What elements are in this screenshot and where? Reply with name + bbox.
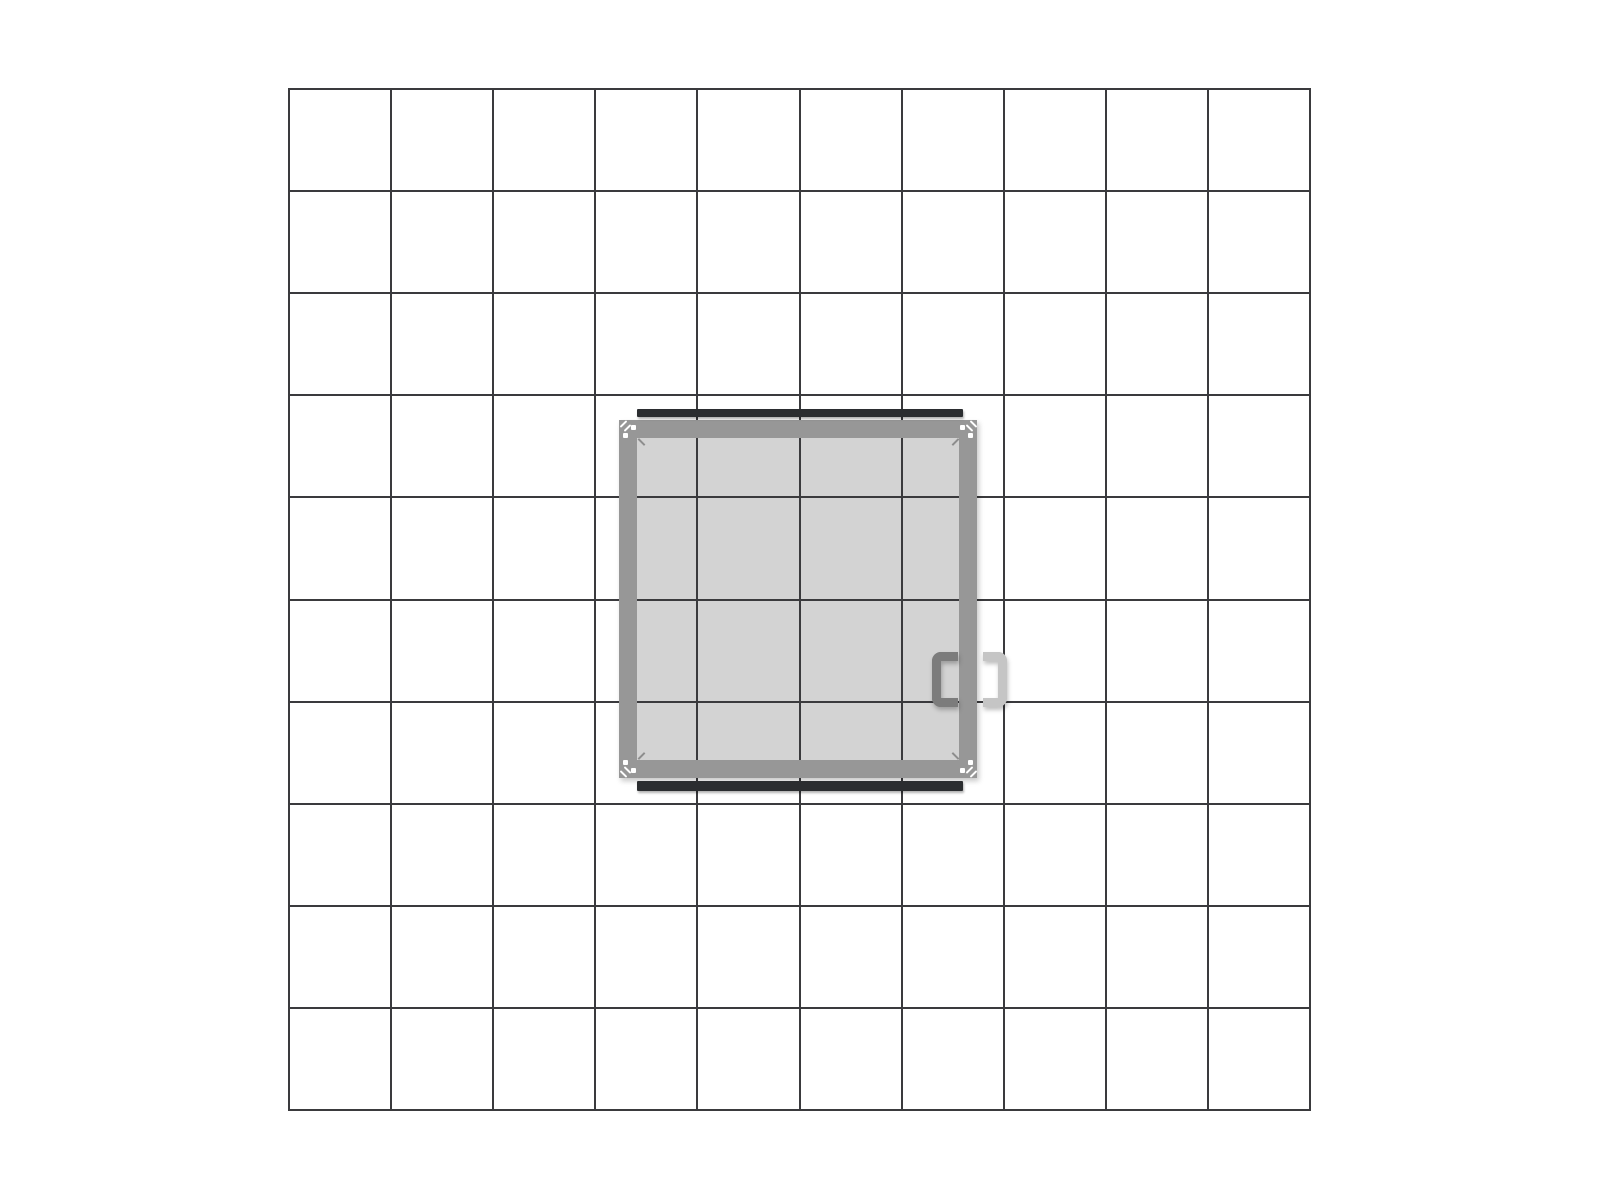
grid-hline xyxy=(288,905,1311,907)
grid-hline xyxy=(288,394,1311,396)
frame-bolt xyxy=(623,433,628,438)
grid-hline xyxy=(288,190,1311,192)
frame-bolt xyxy=(623,760,628,765)
hatch-frame xyxy=(619,420,977,778)
frame-bolt xyxy=(960,425,965,430)
frame-bolt xyxy=(968,760,973,765)
drawing-canvas xyxy=(0,0,1600,1200)
frame-bolt xyxy=(968,433,973,438)
hatch-handle-inner xyxy=(932,652,958,707)
hatch-bottom-gasket-bar xyxy=(637,781,963,791)
frame-bolt xyxy=(631,425,636,430)
hatch-top-gasket-bar xyxy=(637,409,963,417)
grid-hline xyxy=(288,292,1311,294)
grid-hline xyxy=(288,1109,1311,1111)
grid-hline xyxy=(288,1007,1311,1009)
hatch-handle-outer xyxy=(983,652,1007,707)
grid-hline xyxy=(288,88,1311,90)
grid-hline xyxy=(288,803,1311,805)
frame-bolt xyxy=(631,768,636,773)
frame-bolt xyxy=(960,768,965,773)
